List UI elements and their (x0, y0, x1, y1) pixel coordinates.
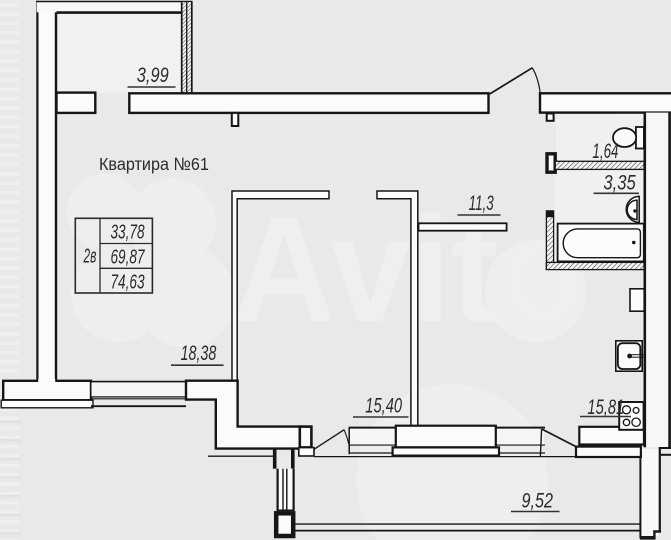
svg-text:2в: 2в (83, 246, 97, 268)
svg-text:Квартира №61: Квартира №61 (99, 154, 209, 174)
svg-text:Avito: Avito (232, 186, 587, 353)
svg-text:9,52: 9,52 (522, 488, 554, 512)
svg-text:3,35: 3,35 (603, 172, 636, 195)
svg-text:33,78: 33,78 (111, 221, 145, 243)
svg-text:18,38: 18,38 (181, 341, 217, 364)
svg-text:74,63: 74,63 (111, 271, 145, 293)
svg-text:1,64: 1,64 (592, 139, 618, 163)
svg-text:3,99: 3,99 (137, 63, 169, 86)
svg-text:15,81: 15,81 (587, 395, 624, 418)
svg-text:11,3: 11,3 (469, 191, 494, 215)
svg-text:15,40: 15,40 (365, 394, 402, 417)
svg-text:69,87: 69,87 (111, 246, 146, 268)
